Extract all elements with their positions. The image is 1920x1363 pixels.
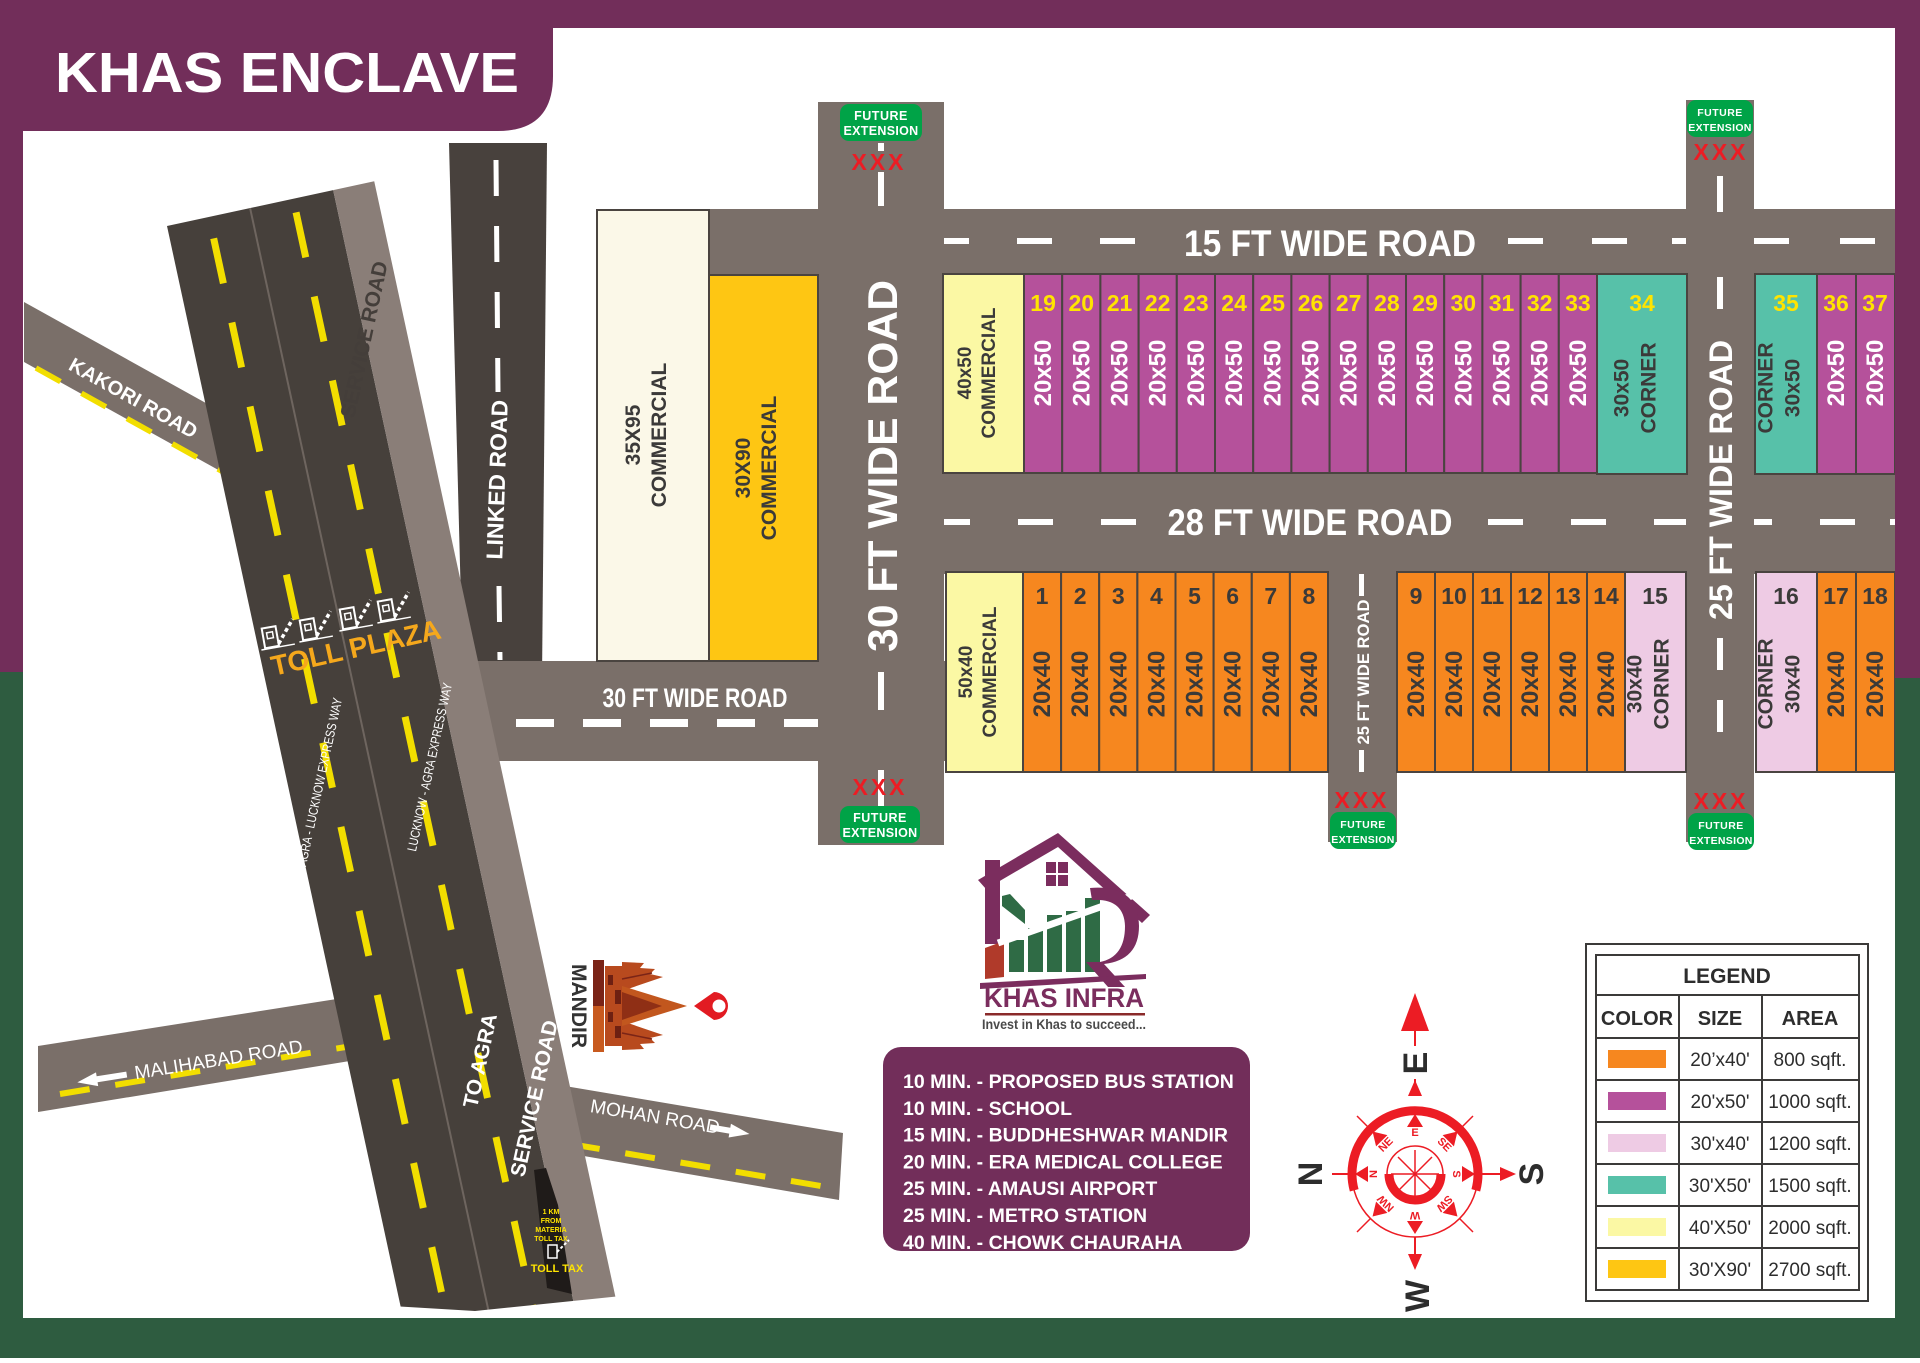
svg-text:21: 21 xyxy=(1107,290,1133,316)
svg-text:19: 19 xyxy=(1030,290,1056,316)
svg-text:28: 28 xyxy=(1374,290,1400,316)
svg-text:AREA: AREA xyxy=(1782,1008,1839,1030)
svg-text:23: 23 xyxy=(1183,290,1209,316)
svg-text:40'X50': 40'X50' xyxy=(1689,1218,1751,1239)
svg-text:CORNER: CORNER xyxy=(1755,638,1778,729)
svg-text:20x50: 20x50 xyxy=(1374,340,1401,407)
svg-text:10 MIN. - PROPOSED BUS STATION: 10 MIN. - PROPOSED BUS STATION xyxy=(903,1071,1234,1093)
svg-text:COMMERCIAL: COMMERCIAL xyxy=(758,396,781,541)
svg-text:20x50: 20x50 xyxy=(1565,340,1592,407)
svg-text:10: 10 xyxy=(1441,583,1467,609)
svg-text:20x40: 20x40 xyxy=(1862,651,1889,718)
svg-text:20x50: 20x50 xyxy=(1489,340,1516,407)
svg-text:COMMERCIAL: COMMERCIAL xyxy=(648,363,671,508)
svg-text:N: N xyxy=(1368,1170,1380,1178)
svg-text:1500 sqft.: 1500 sqft. xyxy=(1768,1176,1851,1197)
svg-text:20x40: 20x40 xyxy=(1220,651,1247,718)
svg-text:W: W xyxy=(1399,1279,1437,1312)
svg-text:FUTURE: FUTURE xyxy=(1340,819,1386,831)
svg-text:N: N xyxy=(1292,1162,1330,1187)
svg-text:20x50: 20x50 xyxy=(1412,340,1439,407)
svg-text:16: 16 xyxy=(1773,583,1799,609)
svg-text:20x50: 20x50 xyxy=(1862,340,1889,407)
svg-text:20x40: 20x40 xyxy=(1441,651,1468,718)
svg-text:20x50: 20x50 xyxy=(1068,340,1095,407)
svg-text:CORNER: CORNER xyxy=(1755,342,1778,433)
svg-text:30'X90': 30'X90' xyxy=(1689,1260,1751,1281)
svg-text:30x40: 30x40 xyxy=(1624,655,1647,713)
svg-text:XXX: XXX xyxy=(851,149,906,175)
svg-text:KHAS INFRA: KHAS INFRA xyxy=(984,983,1144,1013)
svg-text:5: 5 xyxy=(1188,583,1201,609)
svg-text:15 FT WIDE ROAD: 15 FT WIDE ROAD xyxy=(1184,223,1476,264)
svg-text:18: 18 xyxy=(1862,583,1888,609)
svg-text:20'x50': 20'x50' xyxy=(1690,1092,1749,1113)
svg-text:20’x40': 20’x40' xyxy=(1690,1050,1750,1071)
svg-text:7: 7 xyxy=(1264,583,1277,609)
svg-text:25 MIN. - AMAUSI AIRPORT: 25 MIN. - AMAUSI AIRPORT xyxy=(903,1178,1157,1200)
svg-text:20x50: 20x50 xyxy=(1823,340,1850,407)
svg-text:2: 2 xyxy=(1074,583,1087,609)
svg-text:34: 34 xyxy=(1629,290,1655,316)
svg-text:FUTURE: FUTURE xyxy=(853,811,907,825)
svg-text:EXTENSION: EXTENSION xyxy=(1331,834,1394,846)
svg-text:20x40: 20x40 xyxy=(1593,651,1620,718)
svg-text:12: 12 xyxy=(1517,583,1543,609)
svg-text:20x40: 20x40 xyxy=(1479,651,1506,718)
svg-text:32: 32 xyxy=(1527,290,1553,316)
svg-text:30X90: 30X90 xyxy=(732,438,755,499)
svg-text:XXX: XXX xyxy=(852,774,907,800)
svg-text:SIZE: SIZE xyxy=(1698,1008,1742,1030)
svg-text:20x40: 20x40 xyxy=(1182,651,1209,718)
svg-text:COLOR: COLOR xyxy=(1601,1008,1674,1030)
svg-text:20x50: 20x50 xyxy=(1259,340,1286,407)
svg-text:20x40: 20x40 xyxy=(1029,651,1056,718)
svg-text:S: S xyxy=(1450,1170,1462,1177)
svg-text:W: W xyxy=(1409,1209,1420,1221)
svg-text:1200 sqft.: 1200 sqft. xyxy=(1768,1134,1851,1155)
svg-text:EXTENSION: EXTENSION xyxy=(1688,122,1751,134)
svg-text:TOLL TAX: TOLL TAX xyxy=(531,1263,584,1275)
svg-text:2000 sqft.: 2000 sqft. xyxy=(1768,1218,1851,1239)
svg-text:50x40: 50x40 xyxy=(956,646,977,699)
svg-text:Invest in Khas to succeed...: Invest in Khas to succeed... xyxy=(982,1016,1146,1032)
svg-text:30x50: 30x50 xyxy=(1611,359,1634,417)
svg-text:15: 15 xyxy=(1642,583,1668,609)
svg-text:37: 37 xyxy=(1862,290,1888,316)
svg-text:1000 sqft.: 1000 sqft. xyxy=(1768,1092,1851,1113)
svg-text:31: 31 xyxy=(1489,290,1515,316)
svg-text:LEGEND: LEGEND xyxy=(1683,965,1771,988)
svg-text:3: 3 xyxy=(1112,583,1125,609)
svg-text:CORNER: CORNER xyxy=(1651,638,1674,729)
svg-text:TOLL TAX: TOLL TAX xyxy=(534,1236,568,1243)
svg-text:35: 35 xyxy=(1773,290,1799,316)
svg-text:14: 14 xyxy=(1593,583,1619,609)
svg-text:10 MIN. - SCHOOL: 10 MIN. - SCHOOL xyxy=(903,1098,1072,1120)
svg-text:40 MIN. - CHOWK CHAURAHA: 40 MIN. - CHOWK CHAURAHA xyxy=(903,1232,1183,1254)
svg-text:EXTENSION: EXTENSION xyxy=(1689,835,1752,847)
svg-text:20x40: 20x40 xyxy=(1403,651,1430,718)
svg-text:20x40: 20x40 xyxy=(1258,651,1285,718)
svg-text:KHAS ENCLAVE: KHAS ENCLAVE xyxy=(55,41,519,105)
svg-text:8: 8 xyxy=(1303,583,1316,609)
svg-text:30 FT WIDE ROAD: 30 FT WIDE ROAD xyxy=(603,683,788,713)
svg-text:25 FT WIDE ROAD: 25 FT WIDE ROAD xyxy=(1703,340,1739,620)
svg-text:17: 17 xyxy=(1823,583,1849,609)
svg-text:FUTURE: FUTURE xyxy=(854,109,908,123)
svg-text:XXX: XXX xyxy=(1693,139,1748,165)
svg-text:27: 27 xyxy=(1336,290,1362,316)
svg-text:XXX: XXX xyxy=(1334,787,1389,813)
svg-text:29: 29 xyxy=(1412,290,1438,316)
svg-text:20x40: 20x40 xyxy=(1105,651,1132,718)
svg-text:E: E xyxy=(1411,1127,1418,1139)
svg-text:30: 30 xyxy=(1451,290,1477,316)
svg-text:11: 11 xyxy=(1480,583,1505,609)
svg-text:20x40: 20x40 xyxy=(1067,651,1094,718)
svg-text:30x40: 30x40 xyxy=(1782,655,1805,713)
svg-text:20x50: 20x50 xyxy=(1298,340,1325,407)
svg-text:EXTENSION: EXTENSION xyxy=(843,826,918,840)
svg-text:25 FT WIDE ROAD: 25 FT WIDE ROAD xyxy=(1355,599,1373,744)
svg-text:MATERIA: MATERIA xyxy=(535,1227,566,1234)
svg-text:26: 26 xyxy=(1298,290,1324,316)
svg-text:EXTENSION: EXTENSION xyxy=(844,124,919,138)
svg-text:20x50: 20x50 xyxy=(1183,340,1210,407)
svg-text:9: 9 xyxy=(1410,583,1423,609)
svg-text:COMMERCIAL: COMMERCIAL xyxy=(979,307,1000,438)
svg-text:30'x40': 30'x40' xyxy=(1690,1134,1749,1155)
svg-text:20x50: 20x50 xyxy=(1107,340,1134,407)
svg-text:22: 22 xyxy=(1145,290,1171,316)
svg-text:33: 33 xyxy=(1565,290,1591,316)
svg-text:20x40: 20x40 xyxy=(1143,651,1170,718)
svg-text:25 MIN. - METRO STATION: 25 MIN. - METRO STATION xyxy=(903,1205,1147,1227)
svg-text:36: 36 xyxy=(1823,290,1849,316)
svg-text:20x40: 20x40 xyxy=(1823,651,1850,718)
svg-text:15 MIN. - BUDDHESHWAR MANDIR: 15 MIN. - BUDDHESHWAR MANDIR xyxy=(903,1125,1228,1147)
svg-text:30x50: 30x50 xyxy=(1782,359,1805,417)
svg-text:S: S xyxy=(1513,1163,1551,1186)
svg-text:CORNER: CORNER xyxy=(1638,342,1661,433)
svg-text:20x40: 20x40 xyxy=(1296,651,1323,718)
svg-text:28 FT WIDE ROAD: 28 FT WIDE ROAD xyxy=(1168,502,1453,543)
svg-text:30 FT WIDE ROAD: 30 FT WIDE ROAD xyxy=(859,280,906,652)
svg-text:20x40: 20x40 xyxy=(1555,651,1582,718)
svg-text:MANDIR: MANDIR xyxy=(567,964,590,1048)
svg-text:35X95: 35X95 xyxy=(622,404,645,465)
svg-text:20x50: 20x50 xyxy=(1450,340,1477,407)
svg-text:40x50: 40x50 xyxy=(955,347,976,400)
svg-text:XXX: XXX xyxy=(1693,788,1748,814)
svg-text:1 KM: 1 KM xyxy=(543,1209,560,1216)
svg-text:FUTURE: FUTURE xyxy=(1698,820,1744,832)
svg-text:FUTURE: FUTURE xyxy=(1697,107,1743,119)
svg-text:1: 1 xyxy=(1036,583,1049,609)
svg-text:20x50: 20x50 xyxy=(1336,340,1363,407)
svg-text:FROM: FROM xyxy=(541,1218,562,1225)
svg-text:20x50: 20x50 xyxy=(1030,340,1057,407)
svg-text:COMMERCIAL: COMMERCIAL xyxy=(980,606,1001,737)
svg-text:20x50: 20x50 xyxy=(1527,340,1554,407)
svg-text:LINKED ROAD: LINKED ROAD xyxy=(481,399,513,560)
svg-text:13: 13 xyxy=(1555,583,1581,609)
svg-text:20x50: 20x50 xyxy=(1145,340,1172,407)
svg-text:2700 sqft.: 2700 sqft. xyxy=(1768,1260,1851,1281)
svg-text:25: 25 xyxy=(1260,290,1286,316)
svg-text:20x50: 20x50 xyxy=(1221,340,1248,407)
svg-text:30'X50': 30'X50' xyxy=(1689,1176,1751,1197)
svg-text:4: 4 xyxy=(1150,583,1163,609)
svg-text:6: 6 xyxy=(1226,583,1239,609)
svg-text:20x40: 20x40 xyxy=(1517,651,1544,718)
svg-text:800 sqft.: 800 sqft. xyxy=(1774,1050,1847,1071)
svg-text:24: 24 xyxy=(1221,290,1247,316)
svg-text:20: 20 xyxy=(1069,290,1095,316)
svg-text:20 MIN. - ERA MEDICAL COLLEGE: 20 MIN. - ERA MEDICAL COLLEGE xyxy=(903,1151,1223,1173)
svg-text:E: E xyxy=(1397,1052,1435,1075)
